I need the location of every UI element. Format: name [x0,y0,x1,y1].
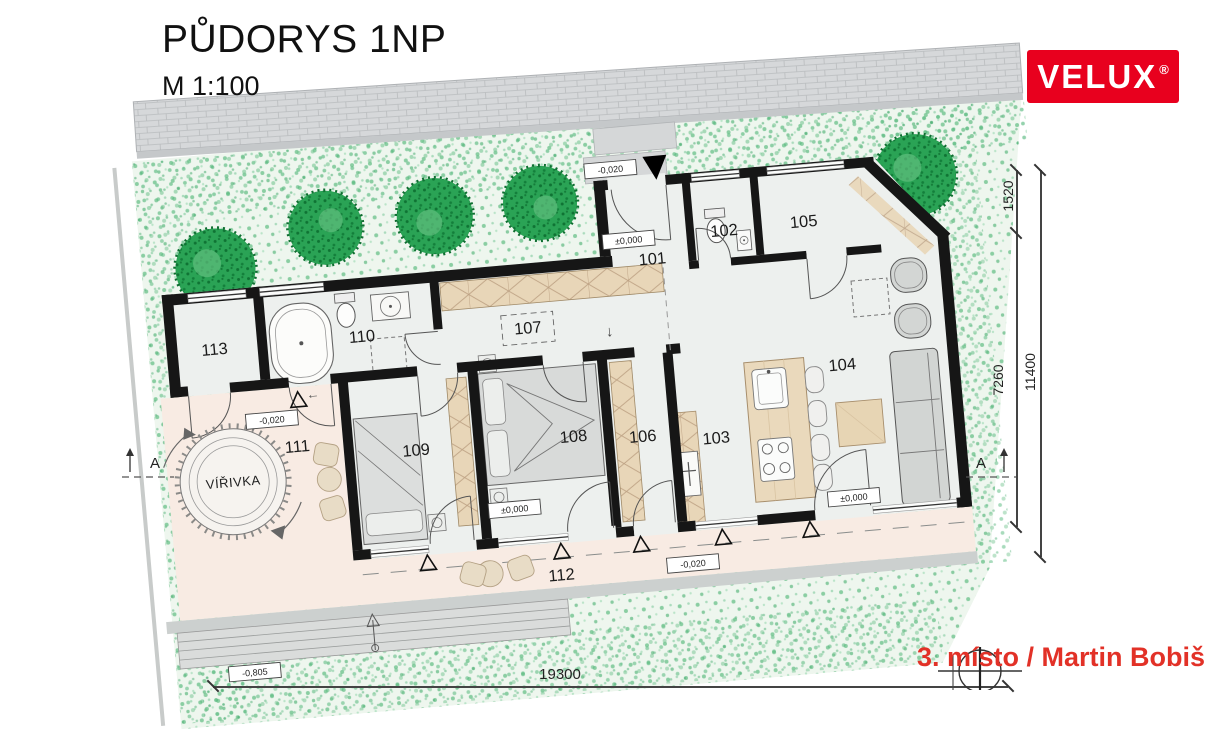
site-plan: VÍŘIVKA ↓ ← 101 102 103 104 105 106 107 … [88,0,1142,732]
award-credit: 3. místo / Martin Bobiš [917,642,1205,673]
room-101-label: 101 [638,249,667,269]
pillow [366,509,424,536]
room-112-label: 112 [548,565,576,585]
room-113-label: 113 [201,340,229,360]
room-109-label: 109 [402,441,431,461]
velux-logo-text: VELUX [1037,58,1157,96]
section-label-right: A [976,455,986,472]
cooktop-icon [758,437,796,482]
room-102-label: 102 [710,221,739,241]
room-108-label: 108 [559,427,588,447]
dim-19300: 19300 [520,666,600,683]
room-103-label: 103 [702,428,731,448]
pillow [482,378,506,426]
title-block: PŮDORYS 1NP M 1:100 [162,18,446,102]
room-107-label: 107 [513,318,542,338]
page-title: PŮDORYS 1NP [162,18,446,62]
terrace-arrow-icon: ← [306,386,320,402]
dim-1520: 1520 [1000,164,1016,228]
pillow [487,430,511,478]
floorplan-page: { "header": {"title": "PŮDORYS 1NP", "sc… [0,0,1227,690]
drawing-scale: M 1:100 [162,71,446,102]
room-111-label: 111 [284,437,311,457]
floorplan-drawing: VÍŘIVKA ↓ ← 101 102 103 104 105 106 107 … [88,0,1142,732]
section-label-left: A [150,455,160,472]
hall-arrow-icon: ↓ [605,323,614,341]
section-marker-right: A [962,446,1018,480]
velux-logo: VELUX ® [1027,50,1179,103]
dim-11400: 11400 [1022,340,1038,404]
section-marker-left: A [122,446,178,480]
room-106-label: 106 [628,427,657,447]
registered-trademark-icon: ® [1159,62,1169,77]
dim-7260: 7260 [990,348,1006,412]
room-104-label: 104 [828,355,857,375]
room-110-label: 110 [348,327,376,347]
room-105-label: 105 [789,212,818,232]
